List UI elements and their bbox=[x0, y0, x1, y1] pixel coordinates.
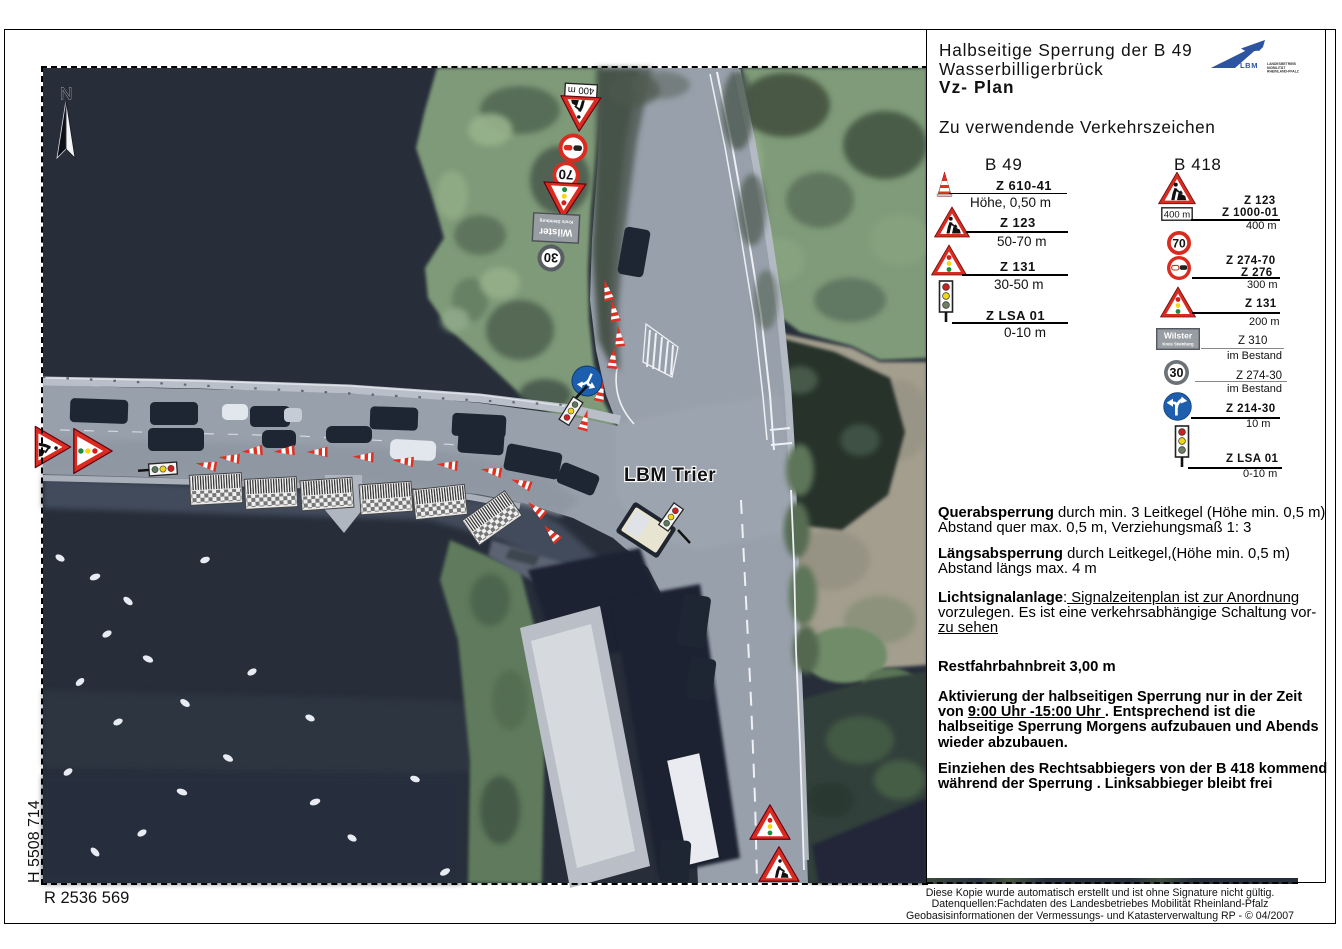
svg-text:30: 30 bbox=[1170, 366, 1184, 380]
svg-text:400 m: 400 m bbox=[1164, 210, 1190, 221]
svg-text:Wilster: Wilster bbox=[1164, 331, 1193, 341]
svg-text:Kreis Steinburg: Kreis Steinburg bbox=[1162, 342, 1194, 347]
svg-text:LBM: LBM bbox=[1240, 61, 1258, 70]
svg-text:70: 70 bbox=[1172, 236, 1186, 250]
svg-text:RHEINLAND-PFALZ: RHEINLAND-PFALZ bbox=[1267, 70, 1299, 74]
